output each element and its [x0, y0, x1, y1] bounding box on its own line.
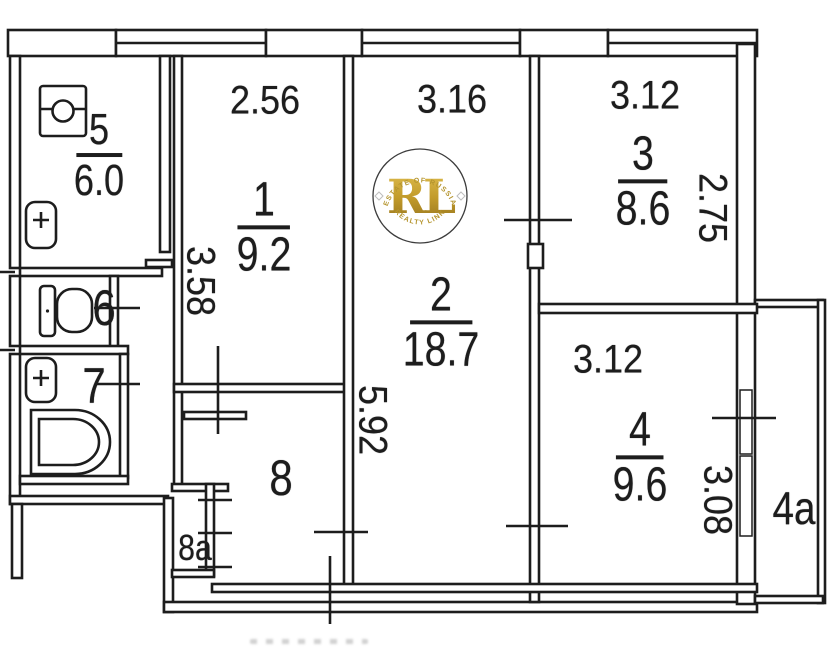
- bath-sink-icon: [26, 358, 56, 402]
- window-band: [8, 30, 757, 56]
- room2-depth-dim: 5.92: [350, 385, 395, 455]
- room3-width-dim: 3.12: [610, 74, 680, 119]
- room6-label: 6: [92, 279, 115, 337]
- room2-area: 18.7: [403, 329, 480, 373]
- room3-depth-dim: 2.75: [690, 173, 735, 243]
- room4-depth-dim: 3.08: [695, 465, 740, 535]
- room3-label: 3 8.6: [616, 132, 671, 231]
- room4-width-dim: 3.12: [573, 338, 643, 383]
- room8-label: 8: [269, 449, 292, 507]
- room1-area: 9.2: [237, 234, 292, 278]
- room2-number: 2: [403, 273, 480, 317]
- balcony-window-frames: [740, 390, 752, 536]
- room5-label: 5 6.0: [74, 110, 124, 202]
- scan-artifact: [250, 639, 368, 644]
- room1-depth-dim: 3.58: [178, 246, 223, 316]
- room2-width-dim: 3.16: [417, 78, 487, 123]
- kitchen-sink-icon: [26, 202, 56, 248]
- room1-width-dim: 2.56: [230, 79, 300, 124]
- bathtub-icon: [31, 410, 110, 474]
- room4-number: 4: [613, 408, 668, 452]
- balcony-walls: [755, 300, 825, 603]
- room4-label: 4 9.6: [613, 408, 668, 507]
- floorplan-page: RL ESTATE OF RUSSIA REALTY LINK 2.56 3.1…: [0, 0, 837, 650]
- room2-label: 2 18.7: [403, 273, 480, 372]
- room5-number: 5: [74, 110, 124, 150]
- room1-label: 1 9.2: [237, 178, 292, 277]
- room3-number: 3: [616, 132, 671, 176]
- room1-number: 1: [237, 178, 292, 222]
- room8a-label: 8a: [178, 527, 212, 569]
- room7-label: 7: [82, 357, 105, 415]
- watermark-stamp: RL ESTATE OF RUSSIA REALTY LINK: [373, 149, 467, 243]
- toilet-icon: [40, 286, 92, 336]
- room4-area: 9.6: [613, 464, 668, 508]
- room4a-label: 4a: [773, 481, 816, 535]
- room3-area: 8.6: [616, 188, 671, 232]
- room5-area: 6.0: [74, 162, 124, 202]
